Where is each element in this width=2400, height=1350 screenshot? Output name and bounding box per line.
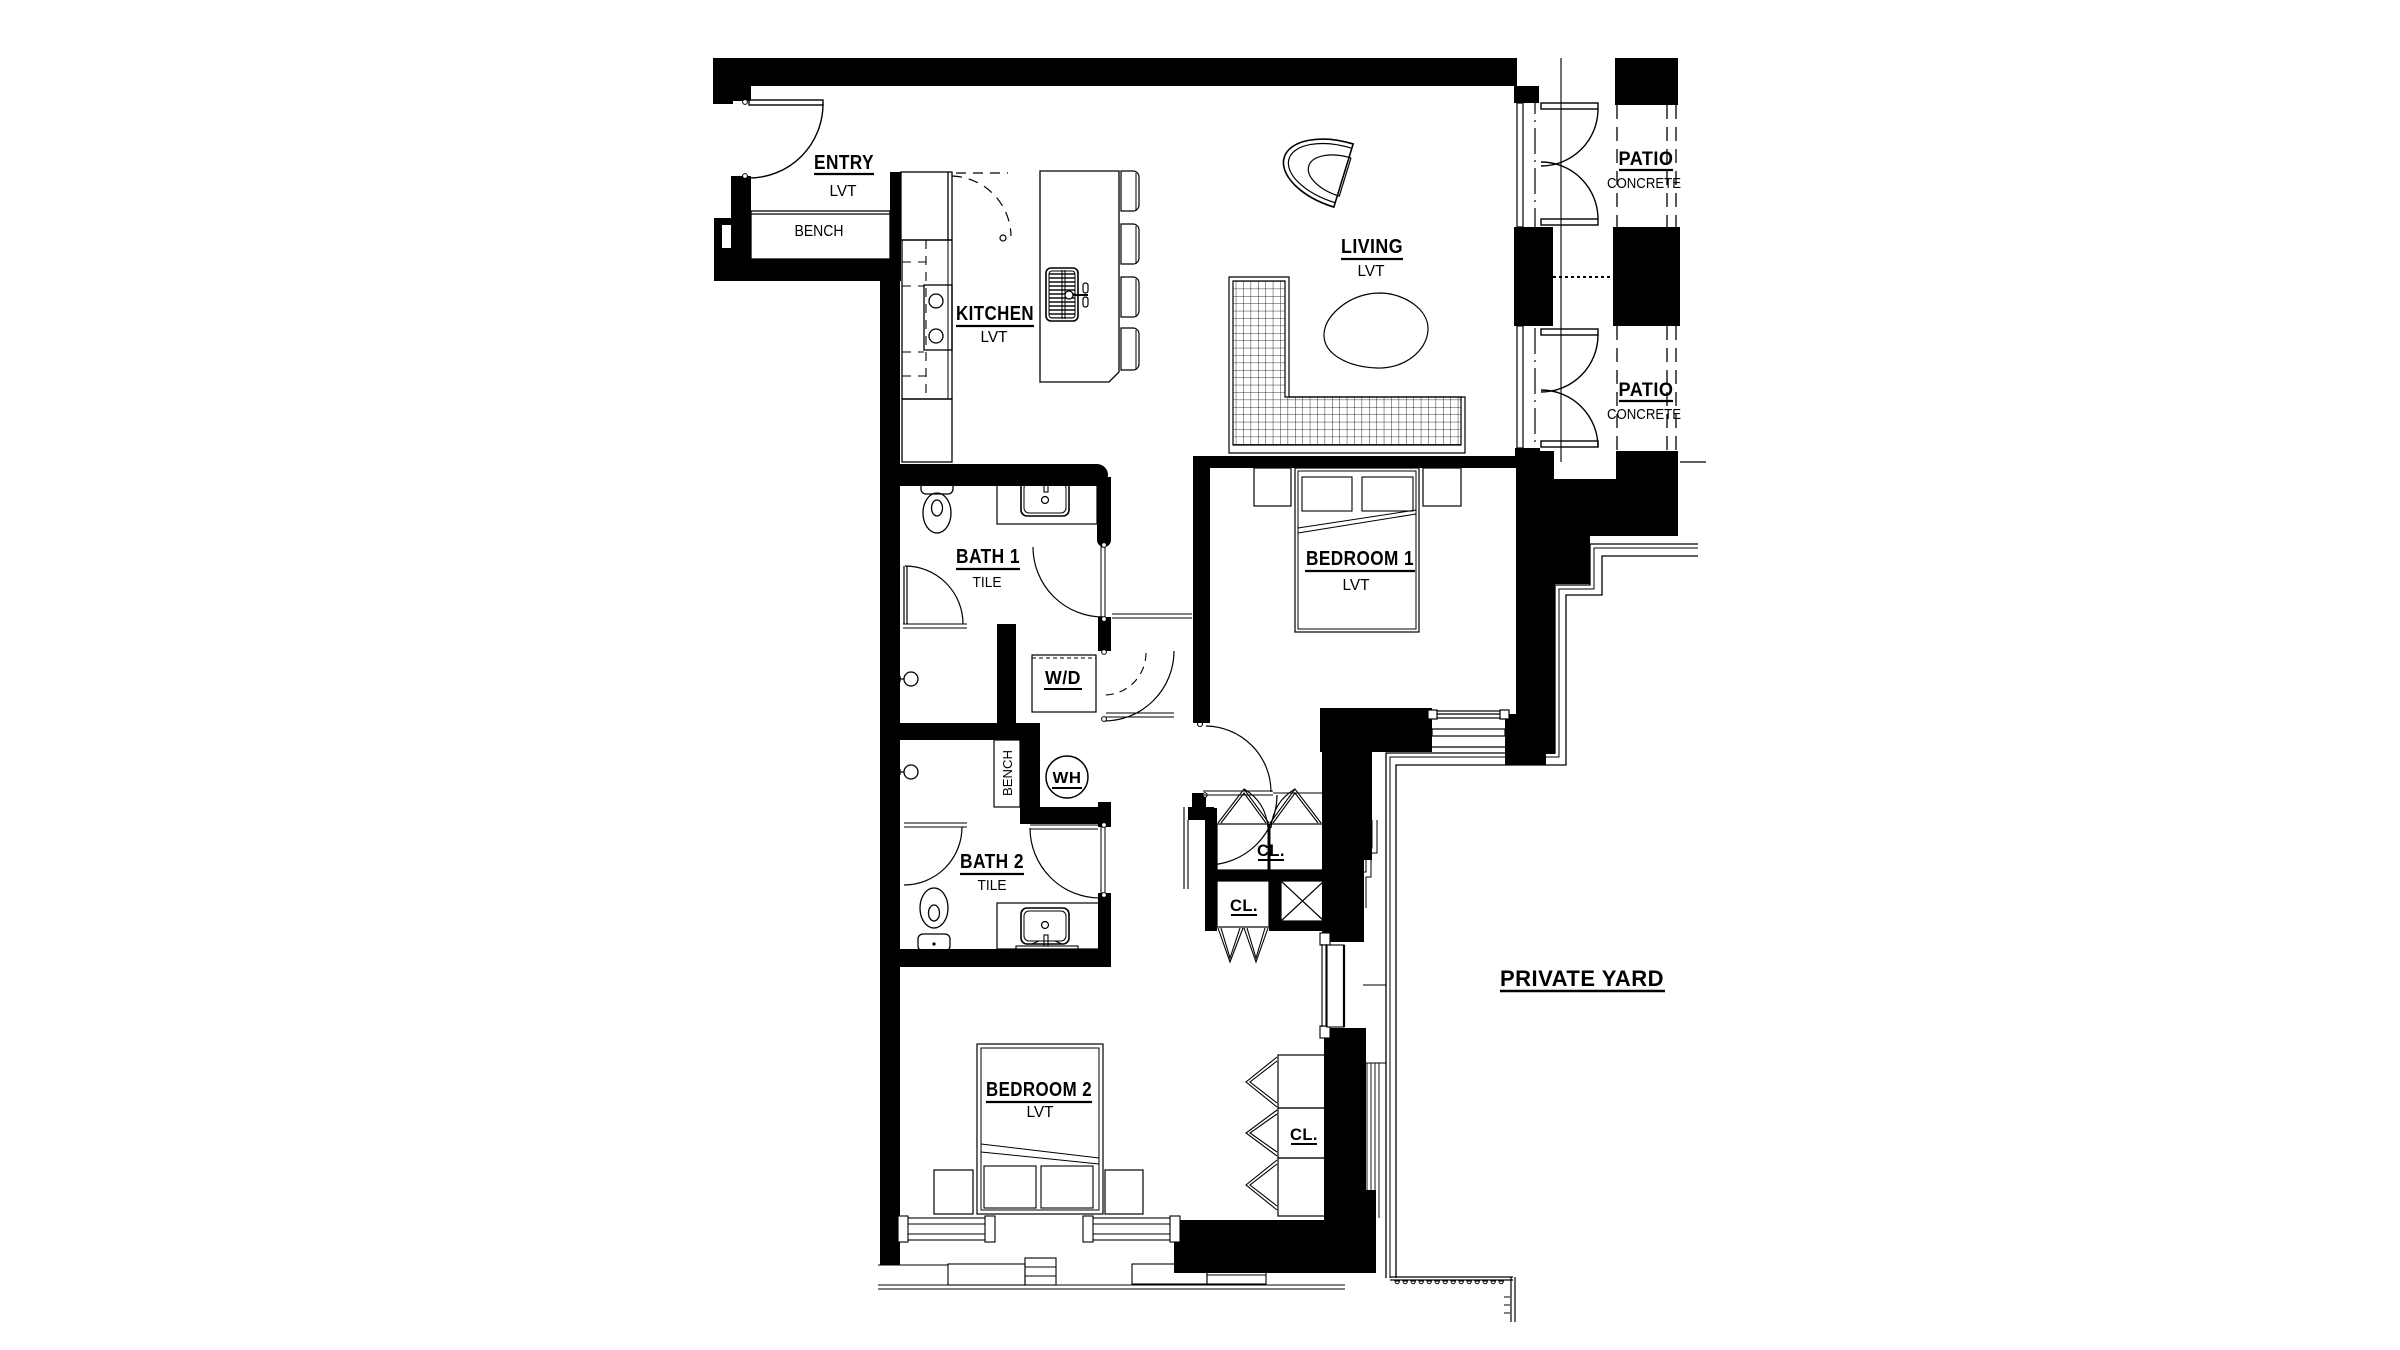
svg-text:LVT: LVT — [1358, 263, 1385, 280]
svg-text:CL.: CL. — [1290, 1125, 1318, 1144]
svg-text:LVT: LVT — [830, 183, 857, 200]
svg-text:ENTRY: ENTRY — [814, 152, 874, 174]
svg-text:PRIVATE YARD: PRIVATE YARD — [1500, 966, 1664, 991]
svg-text:BEDROOM 1: BEDROOM 1 — [1306, 548, 1414, 570]
svg-text:TILE: TILE — [973, 574, 1002, 591]
svg-text:PATIO: PATIO — [1619, 149, 1674, 170]
svg-text:CL.: CL. — [1230, 896, 1258, 915]
svg-text:BATH 2: BATH 2 — [960, 851, 1024, 873]
svg-text:CL.: CL. — [1257, 841, 1285, 860]
svg-text:KITCHEN: KITCHEN — [956, 303, 1034, 325]
svg-text:LIVING: LIVING — [1341, 236, 1403, 258]
svg-text:W/D: W/D — [1045, 668, 1081, 688]
svg-text:CONCRETE: CONCRETE — [1607, 406, 1681, 423]
svg-text:BEDROOM 2: BEDROOM 2 — [986, 1079, 1092, 1101]
svg-text:BENCH: BENCH — [1000, 750, 1015, 796]
svg-text:LVT: LVT — [981, 329, 1008, 346]
svg-text:TILE: TILE — [978, 877, 1007, 894]
svg-text:PATIO: PATIO — [1619, 380, 1674, 401]
svg-text:LVT: LVT — [1343, 577, 1370, 594]
svg-text:CONCRETE: CONCRETE — [1607, 175, 1681, 192]
svg-text:BENCH: BENCH — [795, 223, 844, 240]
svg-text:LVT: LVT — [1027, 1104, 1054, 1121]
svg-text:BATH 1: BATH 1 — [956, 546, 1020, 568]
svg-text:WH: WH — [1053, 770, 1082, 787]
